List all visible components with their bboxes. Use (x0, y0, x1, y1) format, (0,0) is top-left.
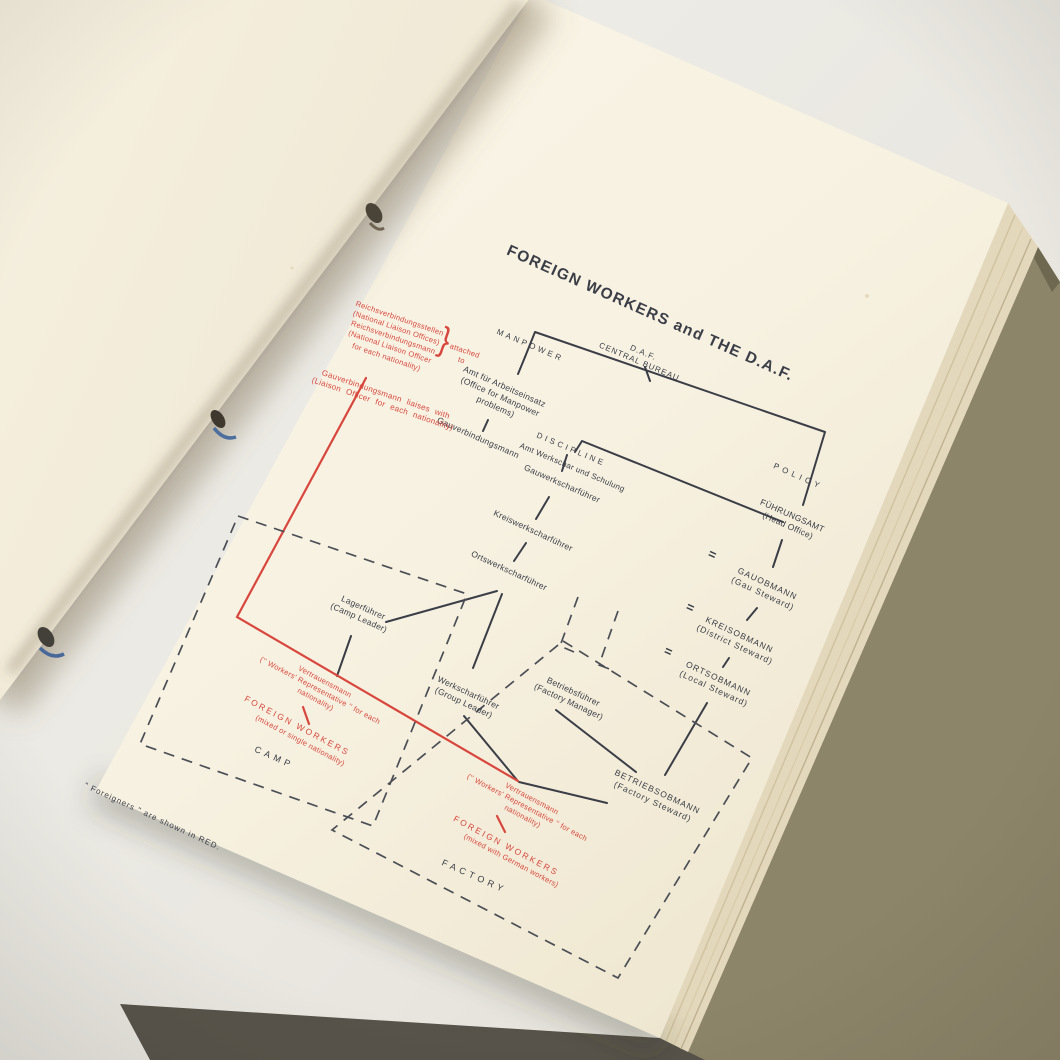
node-kreiswerkscharfuehrer: Kreiswerkscharführer (492, 508, 575, 554)
node-daf-central-bureau: D.A.F. CENTRAL BUREAU (597, 332, 685, 385)
red-gau-liaison: Gauverbindungsmann liaises with (Liaison… (310, 366, 458, 434)
node-ortsobmann: ORTSOBMANN (Local Steward) (678, 658, 755, 710)
node-werkscharfuehrer: Werkscharführer (Group Leader) (431, 674, 501, 722)
diagram-labels: FOREIGN WORKERS and THE D.A.F. MANPOWER … (0, 0, 1060, 1060)
node-policy: POLICY (772, 461, 825, 492)
zone-label-camp: CAMP (252, 744, 295, 772)
node-lagerfuehrer: Lagerführer (Camp Leader) (329, 590, 394, 635)
node-betriebsfuehrer: Betriebsführer (Factory Manager) (532, 671, 609, 723)
equals-sign-3: = (661, 643, 675, 662)
footnote: " Foreigners " are shown in RED. (82, 781, 222, 854)
node-amt-arbeitseinsatz: Amt für Arbeitseinsatz (Office for Manpo… (452, 364, 547, 431)
equals-sign-1: = (705, 546, 719, 565)
red-attached-to: attached to (445, 341, 481, 370)
node-fuehrungsamt: FÜHRUNGSAMT (Head Office) (754, 497, 826, 545)
book-photo: FOREIGN WORKERS and THE D.A.F. MANPOWER … (0, 0, 1060, 1060)
node-kreisobmann: KREISOBMANN (District Steward) (695, 612, 780, 667)
equals-sign-2: = (683, 599, 697, 618)
red-reichsverbindung-block: Reichsverbindungsstellen (National Liais… (341, 299, 445, 377)
zone-label-factory: FACTORY (440, 857, 509, 896)
node-ortswerkscharfuehrer: Ortswerkscharführer (469, 549, 549, 594)
node-manpower: MANPOWER (495, 327, 565, 365)
node-betriebsobmann: BETRIEBSOBMANN (Factory Steward) (608, 767, 702, 826)
node-gauobmann: GAUOBMANN (Gau Steward) (729, 565, 800, 614)
